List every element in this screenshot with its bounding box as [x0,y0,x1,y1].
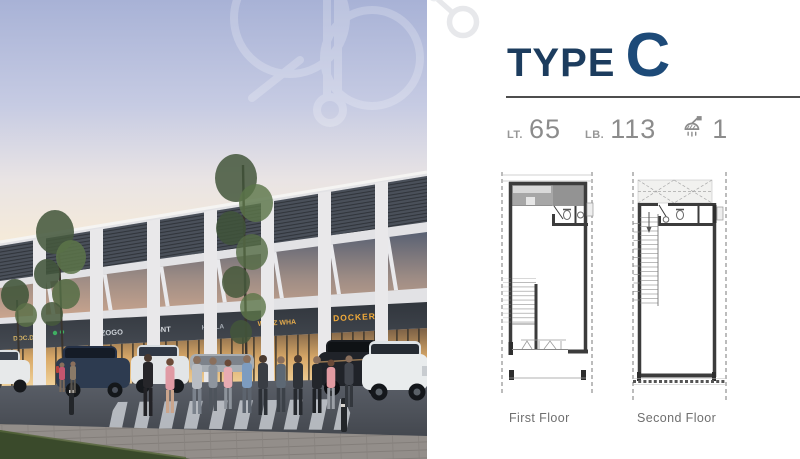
shop-sign: ZOGO [101,327,124,337]
building-area-value: 113 [610,114,656,145]
spec-row: LT. 65 LB. 113 1 [507,112,728,145]
type-label: TYPE [507,41,615,86]
type-letter: C [625,20,670,91]
spec-panel: TYPE C LT. 65 LB. 113 [427,0,800,459]
lot-area-label: LT. [507,129,523,141]
bathroom-spec: 1 [680,112,728,145]
page-title: TYPE C [507,20,670,91]
bathroom-count: 1 [712,114,728,145]
first-floor-label: First Floor [496,411,608,425]
lot-area-spec: LT. 65 [507,114,561,145]
second-floor-label: Second Floor [624,411,736,425]
brochure-page: DOC.DR ZOGO GNT HOLLA WALZ WHA DOCKERS [0,0,800,459]
second-floor-plan: Second Floor [624,172,736,425]
shower-icon [680,115,706,141]
lot-area-value: 65 [529,114,561,145]
first-floor-plan: First Floor [496,172,608,425]
title-divider [506,96,800,98]
first-floor-drawing [496,172,608,404]
molecule-ring-icon [424,0,494,50]
shophouse-photo: DOC.DR ZOGO GNT HOLLA WALZ WHA DOCKERS [0,0,427,459]
second-floor-drawing [624,172,736,404]
building-area-label: LB. [585,129,604,141]
building-area-spec: LB. 113 [585,114,656,145]
